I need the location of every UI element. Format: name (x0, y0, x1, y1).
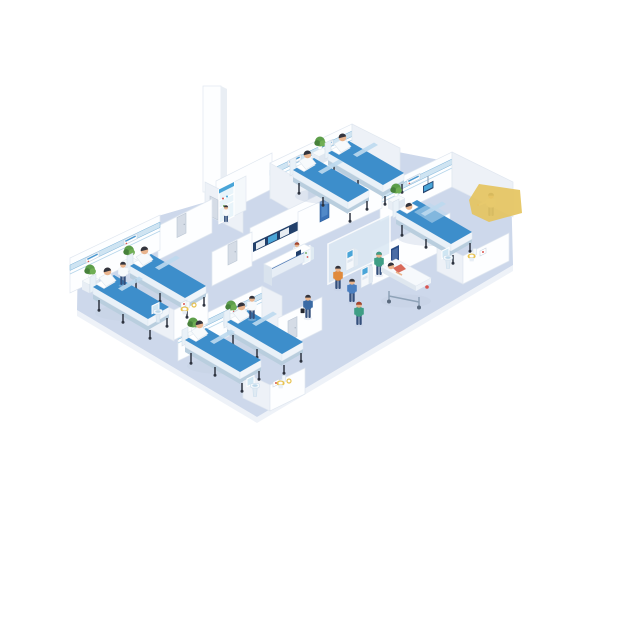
hospital-illustration: Isometric illustration of a hospital flo… (0, 0, 640, 640)
yellow-shape (469, 184, 522, 222)
door-gray-corridor (177, 213, 186, 237)
door-gray-reception (228, 241, 237, 265)
hospital-floor-svg: Isometric illustration of a hospital flo… (0, 0, 640, 640)
briefcase (301, 309, 305, 314)
wall-column (203, 86, 227, 192)
white-cabinet (234, 176, 246, 216)
